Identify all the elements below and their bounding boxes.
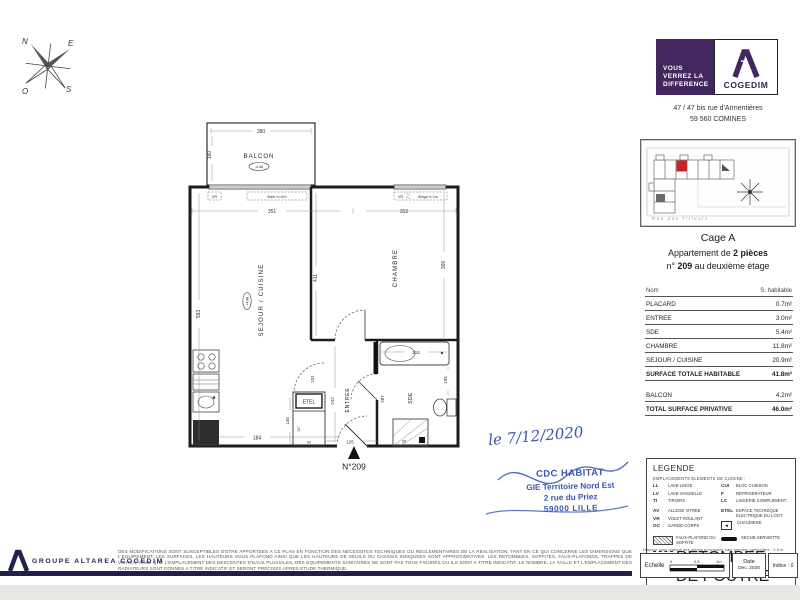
scale-box: Echelle 0 0,5 1m (640, 553, 730, 578)
highlighted-unit (677, 161, 688, 172)
legend-item: LCLINGERIE COMPLEMENT. (721, 499, 789, 504)
apartment-floor: au deuxième étage (692, 261, 769, 271)
dim-chambre-height: 366 (441, 261, 447, 270)
date-label: Date (743, 559, 755, 566)
table-row: ENTREE3.0m² (645, 311, 793, 325)
row-name: CHAMBRE (646, 343, 678, 350)
footer-bar (0, 571, 632, 576)
row-name: SDE (646, 329, 659, 336)
apartment-type-rooms: 2 pièces (733, 248, 768, 258)
dim-101: 101 (310, 375, 315, 383)
balcon-level: -4.48 (255, 165, 263, 169)
row-name: ENTREE (646, 315, 672, 322)
scale-tick-0: 0 (670, 559, 673, 564)
apartment-type-prefix: Appartement de (668, 248, 733, 258)
door-arcs (294, 310, 377, 446)
table-row: CHAMBRE11.8m² (645, 339, 793, 353)
scale-label: Echelle (645, 563, 665, 569)
dim-placard-height: 107 (297, 426, 301, 432)
apartment-type: Appartement de 2 pièces (628, 247, 800, 260)
legend-item-chaudiere: ◄CHAUDIERE (721, 521, 789, 530)
compass-north-label: N (22, 37, 28, 46)
apartment-number-prefix: n° (667, 261, 678, 271)
dim-tub-length: 215 (412, 350, 420, 355)
legend-item-faux-plafond: FAUX-PLAFOND OU SOFFITE (653, 536, 721, 546)
cogedim-a-icon (731, 48, 761, 80)
tagline-line1: VOUS (663, 65, 714, 73)
dim-placard-width: 69 (307, 441, 311, 445)
seche-serviette-swatch (721, 537, 737, 541)
legend-item: CUIBLOC CUISSON (721, 484, 789, 489)
cogedim-tagline: VOUS VERREZ LA DIFFERENCE (656, 39, 714, 95)
cogedim-logo: VOUS VERREZ LA DIFFERENCE COGEDIM (656, 39, 778, 95)
dim-kitchen-height: 146 (285, 417, 290, 425)
row-value: 0.7m² (776, 301, 792, 308)
row-value: 41.8m² (772, 371, 792, 378)
scale-bar-icon: 0 0,5 1m (669, 558, 725, 574)
compass-south-label: S (66, 85, 72, 94)
legend-item: AVALLEGE VITREE (653, 509, 721, 514)
dim-top-right: 312 (400, 209, 409, 215)
legend-item: TITIROIRS (653, 499, 721, 504)
window-left-note: Baie h=2m (267, 194, 287, 199)
floor-plan-document: N E S O VOUS VERREZ LA DIFFERENCE COGEDI… (0, 0, 800, 600)
col-name: Nom (646, 288, 659, 294)
faux-plafond-swatch (653, 536, 673, 545)
chambre-label: CHAMBRE (393, 249, 399, 287)
street-label: Rue des Tilleuls (652, 216, 709, 221)
cage-label: Cage A (628, 232, 800, 244)
table-row: SDE5.4m² (645, 325, 793, 339)
scale-tick-05: 0,5 (694, 559, 700, 564)
row-value: 4.2m² (776, 392, 792, 399)
cogedim-wordmark: COGEDIM (724, 80, 769, 90)
table-row-total-privative: TOTAL SURFACE PRIVATIVE46.0m² (645, 402, 793, 416)
interior-walls (311, 187, 458, 446)
address-line1: 47 / 47 bis rue d'Armentières (633, 104, 800, 115)
seche-serviette-symbol (374, 342, 378, 374)
row-name: SURFACE TOTALE HABITABLE (646, 371, 740, 378)
table-row-total-habitable: SURFACE TOTALE HABITABLE41.8m² (645, 367, 793, 381)
window-left (209, 184, 311, 191)
dim-kitchen-width: 184 (253, 436, 262, 442)
row-value: 5.4m² (776, 329, 792, 336)
outer-walls (190, 187, 458, 446)
legend-item-etel: ETELESPACE TECHNIQUE ELECTRIQUE DU LOGT. (721, 509, 789, 519)
compass-west-label: O (22, 87, 28, 96)
surface-table: Nom S. habitable PLACARD0.7m² ENTREE3.0m… (645, 284, 793, 416)
sejour-level: +4.48 (246, 297, 250, 306)
dim-sejour-height: 593 (196, 310, 202, 319)
legend-item: GCGARDE-CORPS (653, 524, 721, 529)
approval-stamp: le 7/12/2020 CDC HABITAT GIE Territoire … (488, 424, 653, 514)
dim-balcon-height: 160 (207, 151, 213, 160)
apartment-number: 209 (677, 261, 692, 271)
balcon-label: BALCON (244, 154, 275, 160)
dim-top-left: 351 (268, 209, 277, 215)
row-name: TOTAL SURFACE PRIVATIVE (646, 406, 732, 413)
date-value: Dec. 2020 (738, 566, 760, 572)
legend-subtitle: EMPLACEMENTS ELEMENTS DE CUISINE : (653, 476, 789, 481)
tagline-line2: VERREZ LA (663, 73, 714, 81)
bathroom-fixtures (374, 342, 457, 446)
row-name: PLACARD (646, 301, 676, 308)
row-name: BALCON (646, 392, 672, 399)
vr-left-label: VR (212, 194, 218, 199)
dim-sde-height: 287 (380, 395, 385, 403)
scale-tick-1m: 1m (716, 559, 722, 564)
window-right-note: Allège h=1m (418, 195, 438, 199)
row-value: 11.8m² (773, 343, 792, 350)
row-value: 46.0m² (772, 406, 792, 413)
legend-title: LEGENDE (653, 464, 789, 473)
etel-label: ETEL (303, 400, 316, 406)
ceiling-height-note: Hauteur sous plafond des pièces principa… (643, 547, 797, 552)
compass-east-label: E (68, 39, 74, 48)
unit-number-label: N°209 (342, 462, 366, 472)
surface-table-header: Nom S. habitable (645, 284, 793, 297)
dim-entree-width: 125 (346, 440, 354, 445)
footer-disclaimer: DES MODIFICATIONS SONT SUSCEPTIBLES D'ET… (118, 549, 632, 572)
cogedim-mark: COGEDIM (714, 39, 778, 95)
vr-right-label: VR (398, 194, 404, 199)
altarea-logo-icon (8, 549, 30, 573)
table-row: PLACARD0.7m² (645, 297, 793, 311)
project-address: 47 / 47 bis rue d'Armentières 59 560 COM… (633, 104, 800, 125)
address-line2: 59 560 COMINES (633, 115, 800, 126)
chaudiere-icon: ◄ (721, 521, 732, 530)
page-edge (0, 585, 800, 600)
table-row: SEJOUR / CUISINE20.9m² (645, 353, 793, 367)
legend-item-seche-serviette: SECHE-SERVIETTE (721, 536, 789, 541)
sejour-label: SEJOUR / CUISINE (259, 264, 265, 337)
dim-balcon-width: 280 (257, 129, 266, 135)
row-value: 3.0m² (776, 315, 792, 322)
tagline-line3: DIFFERENCE (663, 81, 714, 89)
kitchen-fixtures (193, 350, 219, 412)
col-surface: S. habitable (760, 288, 792, 294)
legend-item: FREFRIGERATEUR (721, 492, 789, 497)
floor-plan-drawing: VR Baie h=2m VR Allège h=1m N°209 (180, 95, 475, 480)
table-row-balcon: BALCON4.2m² (645, 388, 793, 402)
entree-label: ENTREE (345, 387, 351, 412)
legend-item: VRVOLET ROULANT (653, 517, 721, 522)
signature-icon (478, 442, 658, 532)
unit-info: Cage A Appartement de 2 pièces n° 209 au… (628, 232, 800, 273)
legend-item: LLLAVE-LINGE (653, 484, 721, 489)
row-name: SEJOUR / CUISINE (646, 357, 702, 364)
dim-242: 242 (330, 397, 335, 405)
window-right (394, 184, 446, 191)
apartment-number-line: n° 209 au deuxième étage (628, 260, 800, 273)
dim-195: 195 (443, 376, 448, 384)
site-key-plan: Rue des Tilleuls (640, 139, 796, 227)
dimension-lines (192, 128, 456, 444)
kitchen-duct (193, 420, 219, 446)
compass-rose: N E S O (10, 26, 86, 102)
title-block: Echelle 0 0,5 1m Date Dec. 2020 Indice :… (640, 553, 798, 578)
date-box: Date Dec. 2020 (732, 553, 766, 578)
sde-label: SDE (408, 392, 414, 404)
indice-box: Indice : 0 (768, 553, 798, 578)
indice-value: Indice : 0 (772, 563, 793, 569)
legend-item: LVLAVE-VAISSELLE (653, 492, 721, 497)
dim-mid-wall: 411 (313, 274, 319, 282)
row-value: 20.9m² (772, 357, 792, 364)
dim-shower: 35 (402, 439, 407, 444)
